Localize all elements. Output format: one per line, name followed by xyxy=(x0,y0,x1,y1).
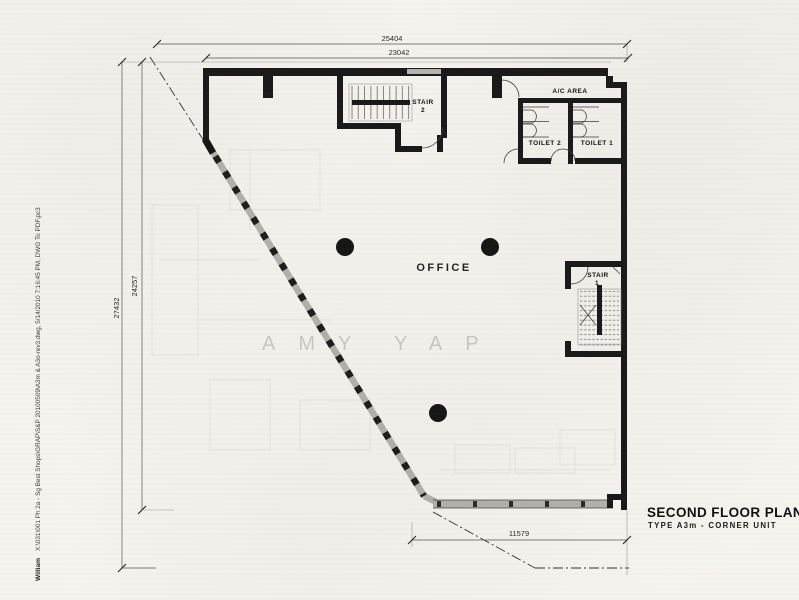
toilet-bottom-wall-left xyxy=(518,158,551,164)
stair-2-number: 2 xyxy=(421,107,425,114)
floor-plan-drawing: AMY YAP 25404 23042 xyxy=(0,0,799,600)
toilet-2-fixtures xyxy=(523,107,549,137)
corridor-door-swing xyxy=(502,80,519,97)
stair-1: STAIR 1 xyxy=(565,261,627,357)
dimension-top-inner-value: 23042 xyxy=(389,48,410,57)
stair-2-left-wall xyxy=(337,76,343,129)
diagonal-wall-top-elbow xyxy=(205,139,213,153)
dimension-left-inner-value: 24257 xyxy=(130,276,139,297)
title-block: SECOND FLOOR PLAN TYPE A3m - CORNER UNIT xyxy=(647,505,799,530)
column xyxy=(336,238,354,256)
drawing-title: SECOND FLOOR PLAN xyxy=(647,505,799,520)
bottom-hatched-wall xyxy=(433,494,621,508)
watermark: AMY YAP xyxy=(262,333,502,355)
wall-top xyxy=(203,68,608,76)
stair-1-number: 1 xyxy=(595,280,599,287)
wall-pier-left xyxy=(263,76,273,98)
stair-1-handrail xyxy=(597,285,602,335)
dimension-top-inner: 23042 xyxy=(202,48,632,62)
column xyxy=(429,404,447,422)
toilet-left-wall xyxy=(518,98,523,164)
watermark-first-name: AMY xyxy=(262,333,374,355)
watermark-last-name: YAP xyxy=(394,333,502,355)
stair-2: STAIR 2 xyxy=(337,76,447,152)
stair-1-left-wall-upper xyxy=(565,261,571,289)
stair-1-top-wall xyxy=(565,261,627,267)
office-label: OFFICE xyxy=(416,262,471,274)
stair-2-label: STAIR xyxy=(412,99,434,106)
wall-right xyxy=(621,84,627,510)
plot-stamp-file-info: X:\031\001 Ph 2a - Sg Best Shops\GRAP\S&… xyxy=(35,207,42,551)
boundary-top-left-diagonal xyxy=(150,57,204,141)
stair-1-bottom-wall xyxy=(565,351,627,357)
stair-2-handrail xyxy=(352,100,410,105)
stair-1-label: STAIR xyxy=(587,272,609,279)
stair-1-corner-brace xyxy=(613,267,620,274)
dimension-bottom: 11579 xyxy=(408,529,631,544)
window-above-stair-2 xyxy=(407,69,441,74)
dimension-bottom-value: 11579 xyxy=(509,529,529,538)
stair-2-right-wall xyxy=(441,76,447,138)
lot-boundary-lines xyxy=(150,57,629,568)
toilet-bottom-wall-right xyxy=(575,158,627,164)
toilet-block: A/C AREA TOILET 2 TOILET 1 xyxy=(518,88,627,164)
dimension-top-outer-value: 25404 xyxy=(382,34,403,43)
stair-1-door-swing xyxy=(571,267,588,284)
walls xyxy=(203,68,627,510)
toilet-2-label: TOILET 2 xyxy=(529,140,561,147)
wall-left xyxy=(203,68,209,141)
ac-area-door-swing xyxy=(504,149,518,163)
plot-stamp-author: William xyxy=(35,558,42,581)
stair-2-landing-bottom-wall xyxy=(395,146,422,152)
stair-2-bottom-wall xyxy=(337,123,401,129)
drawing-subtitle: TYPE A3m - CORNER UNIT xyxy=(648,521,777,530)
column xyxy=(481,238,499,256)
dimension-left-outer: 27432 xyxy=(112,58,126,572)
floor-plan-scan: AMY YAP 25404 23042 xyxy=(0,0,799,600)
dimension-left-inner: 24257 xyxy=(130,58,146,514)
plot-stamp: William X:\031\001 Ph 2a - Sg Best Shops… xyxy=(35,207,42,581)
bottom-wall-right-notch xyxy=(607,494,621,508)
ac-area-label: A/C AREA xyxy=(552,88,587,95)
toilet-dividing-wall xyxy=(568,98,573,164)
toilet-1-label: TOILET 1 xyxy=(581,140,613,147)
dimension-left-outer-value: 27432 xyxy=(112,298,121,319)
wall-pier-right xyxy=(492,76,502,98)
dimension-top-outer: 25404 xyxy=(153,34,631,48)
toilet-1-fixtures xyxy=(573,107,599,137)
